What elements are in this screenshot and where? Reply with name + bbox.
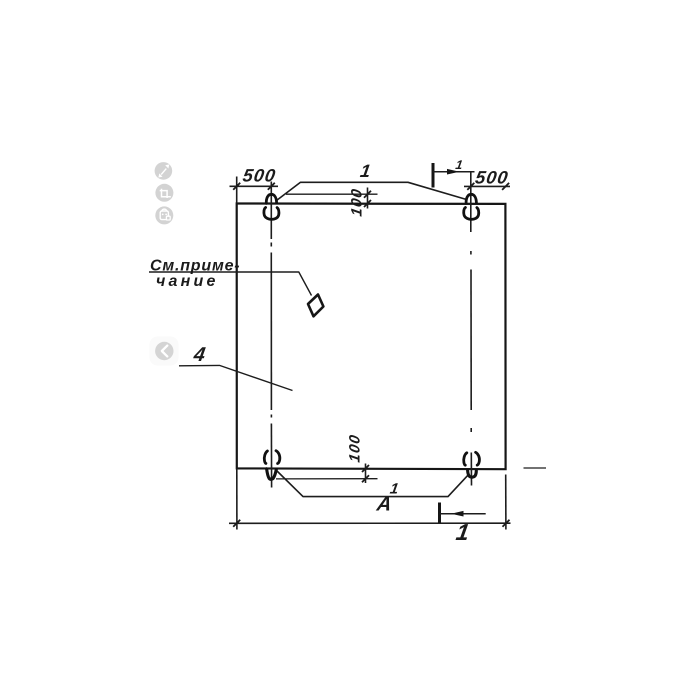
svg-text:500: 500 xyxy=(474,168,510,188)
svg-text:См.приме-: См.приме- xyxy=(150,257,240,274)
svg-text:1: 1 xyxy=(454,519,471,545)
svg-text:100: 100 xyxy=(349,187,366,218)
svg-text:500: 500 xyxy=(241,165,277,185)
svg-text:чание: чание xyxy=(156,273,219,290)
svg-text:1: 1 xyxy=(455,158,464,172)
svg-text:1: 1 xyxy=(359,161,372,181)
svg-text:100: 100 xyxy=(347,433,364,464)
svg-text:4: 4 xyxy=(191,344,207,366)
